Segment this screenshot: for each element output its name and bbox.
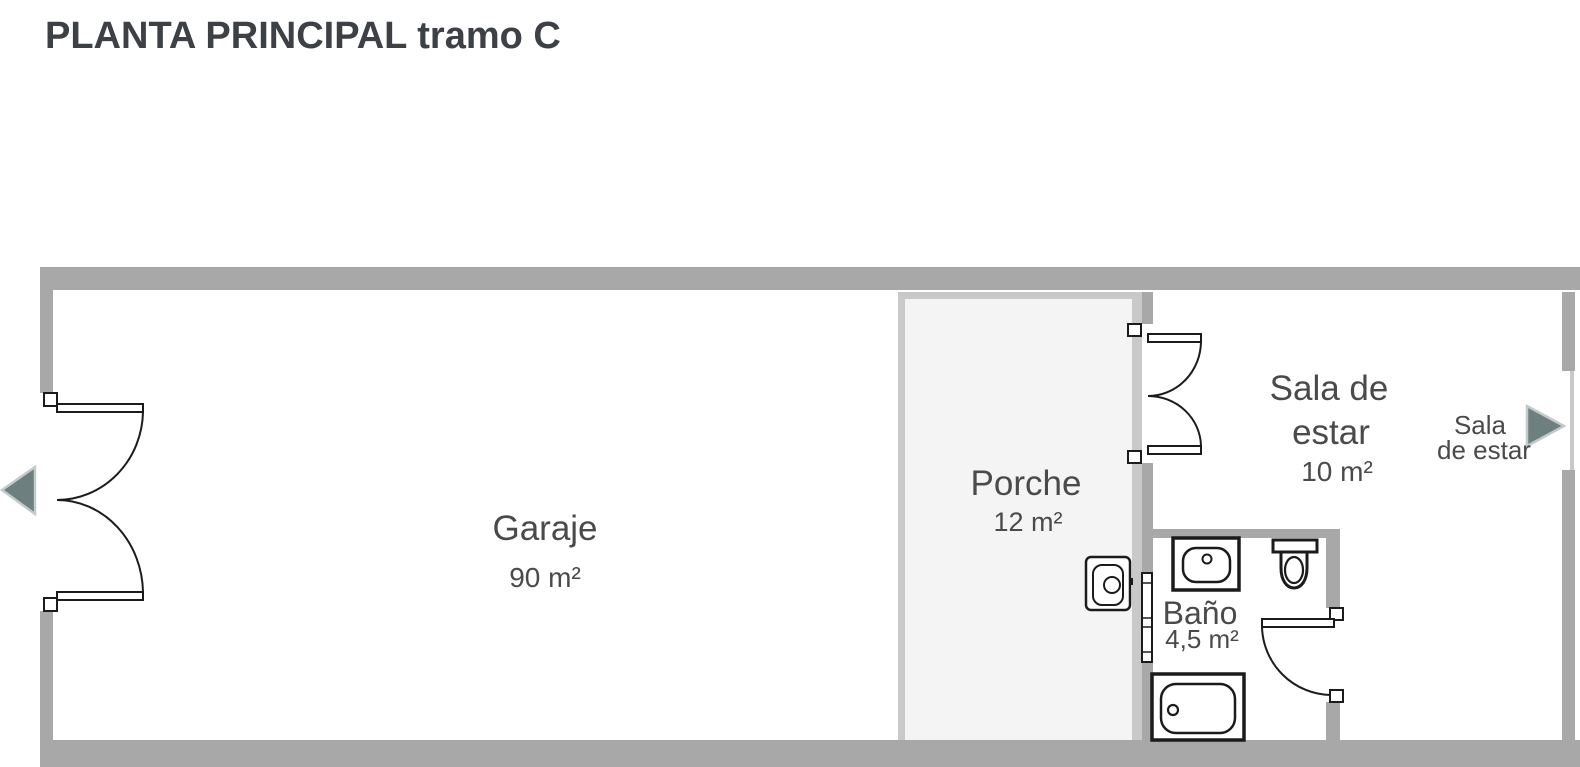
wall-partition-mid	[1142, 463, 1153, 573]
garage-door-arc-bottom	[57, 500, 143, 592]
room-label-garaje: Garaje	[492, 509, 597, 548]
bathroom-door-arc	[1262, 627, 1331, 695]
wall-partition-upper	[1142, 292, 1153, 324]
garage-door-leaf-top	[57, 404, 143, 412]
room-label-porche: Porche	[971, 464, 1082, 503]
porch-border-top	[898, 292, 1142, 299]
living-room-door-jamb-top	[1128, 324, 1141, 336]
living-room-door-jamb-bottom	[1128, 451, 1141, 463]
sink-basin	[1183, 548, 1230, 582]
toilet	[1273, 540, 1317, 588]
room-area-sala: 10 m²	[1301, 456, 1373, 487]
garage-door-jamb-bottom	[44, 598, 57, 611]
bathroom-door-leaf	[1262, 619, 1334, 627]
sink-tap	[1203, 555, 1212, 564]
right-opening-sill	[1570, 371, 1574, 470]
wall-bathroom-right-upper	[1326, 529, 1340, 608]
bathroom-door-jamb-bottom	[1330, 690, 1343, 702]
living-room-door-arc-bottom	[1148, 396, 1201, 446]
porch-border-left	[898, 292, 905, 740]
wall-left-lower	[40, 611, 53, 740]
bathtub-drain	[1168, 705, 1178, 715]
nav-label-sala-line2: de estar	[1437, 435, 1531, 465]
room-label-sala-line2: estar	[1292, 413, 1370, 452]
room-label-sala-line1: Sala de	[1270, 369, 1389, 408]
walls	[40, 267, 1580, 767]
room-area-bano: 4,5 m²	[1165, 624, 1239, 654]
water-heater-dial	[1104, 577, 1120, 593]
nav-arrow-left[interactable]	[2, 467, 35, 514]
wall-right-lower	[1562, 470, 1575, 740]
wall-bottom	[40, 740, 1580, 767]
room-area-garaje: 90 m²	[509, 562, 581, 593]
window	[1142, 573, 1152, 662]
floor-plan-canvas: PLANTA PRINCIPAL tramo C	[0, 0, 1580, 767]
page-title: PLANTA PRINCIPAL tramo C	[45, 15, 561, 57]
bathtub	[1152, 674, 1244, 740]
wall-bathroom-right-lower	[1326, 702, 1340, 740]
garage-door-arc-top	[57, 412, 143, 500]
toilet-bowl-inner	[1285, 557, 1303, 583]
water-heater-knob	[1129, 578, 1133, 585]
sink	[1173, 538, 1239, 590]
toilet-tank	[1273, 540, 1317, 552]
nav-arrow-right[interactable]	[1527, 406, 1564, 446]
floor-plan-page: PLANTA PRINCIPAL tramo C	[0, 0, 1580, 767]
wall-right-upper	[1562, 292, 1575, 371]
living-room-door-arc-top	[1148, 342, 1201, 396]
wall-top	[40, 267, 1580, 290]
wall-left-upper	[40, 267, 53, 393]
water-heater	[1086, 557, 1133, 610]
room-area-porche: 12 m²	[993, 507, 1062, 537]
porch-border-right	[1132, 292, 1142, 740]
living-room-door-leaf-bottom	[1148, 446, 1201, 454]
garage-door-jamb-top	[44, 393, 57, 406]
living-room-door-leaf-top	[1148, 334, 1201, 342]
garage-door-leaf-bottom	[57, 592, 143, 600]
